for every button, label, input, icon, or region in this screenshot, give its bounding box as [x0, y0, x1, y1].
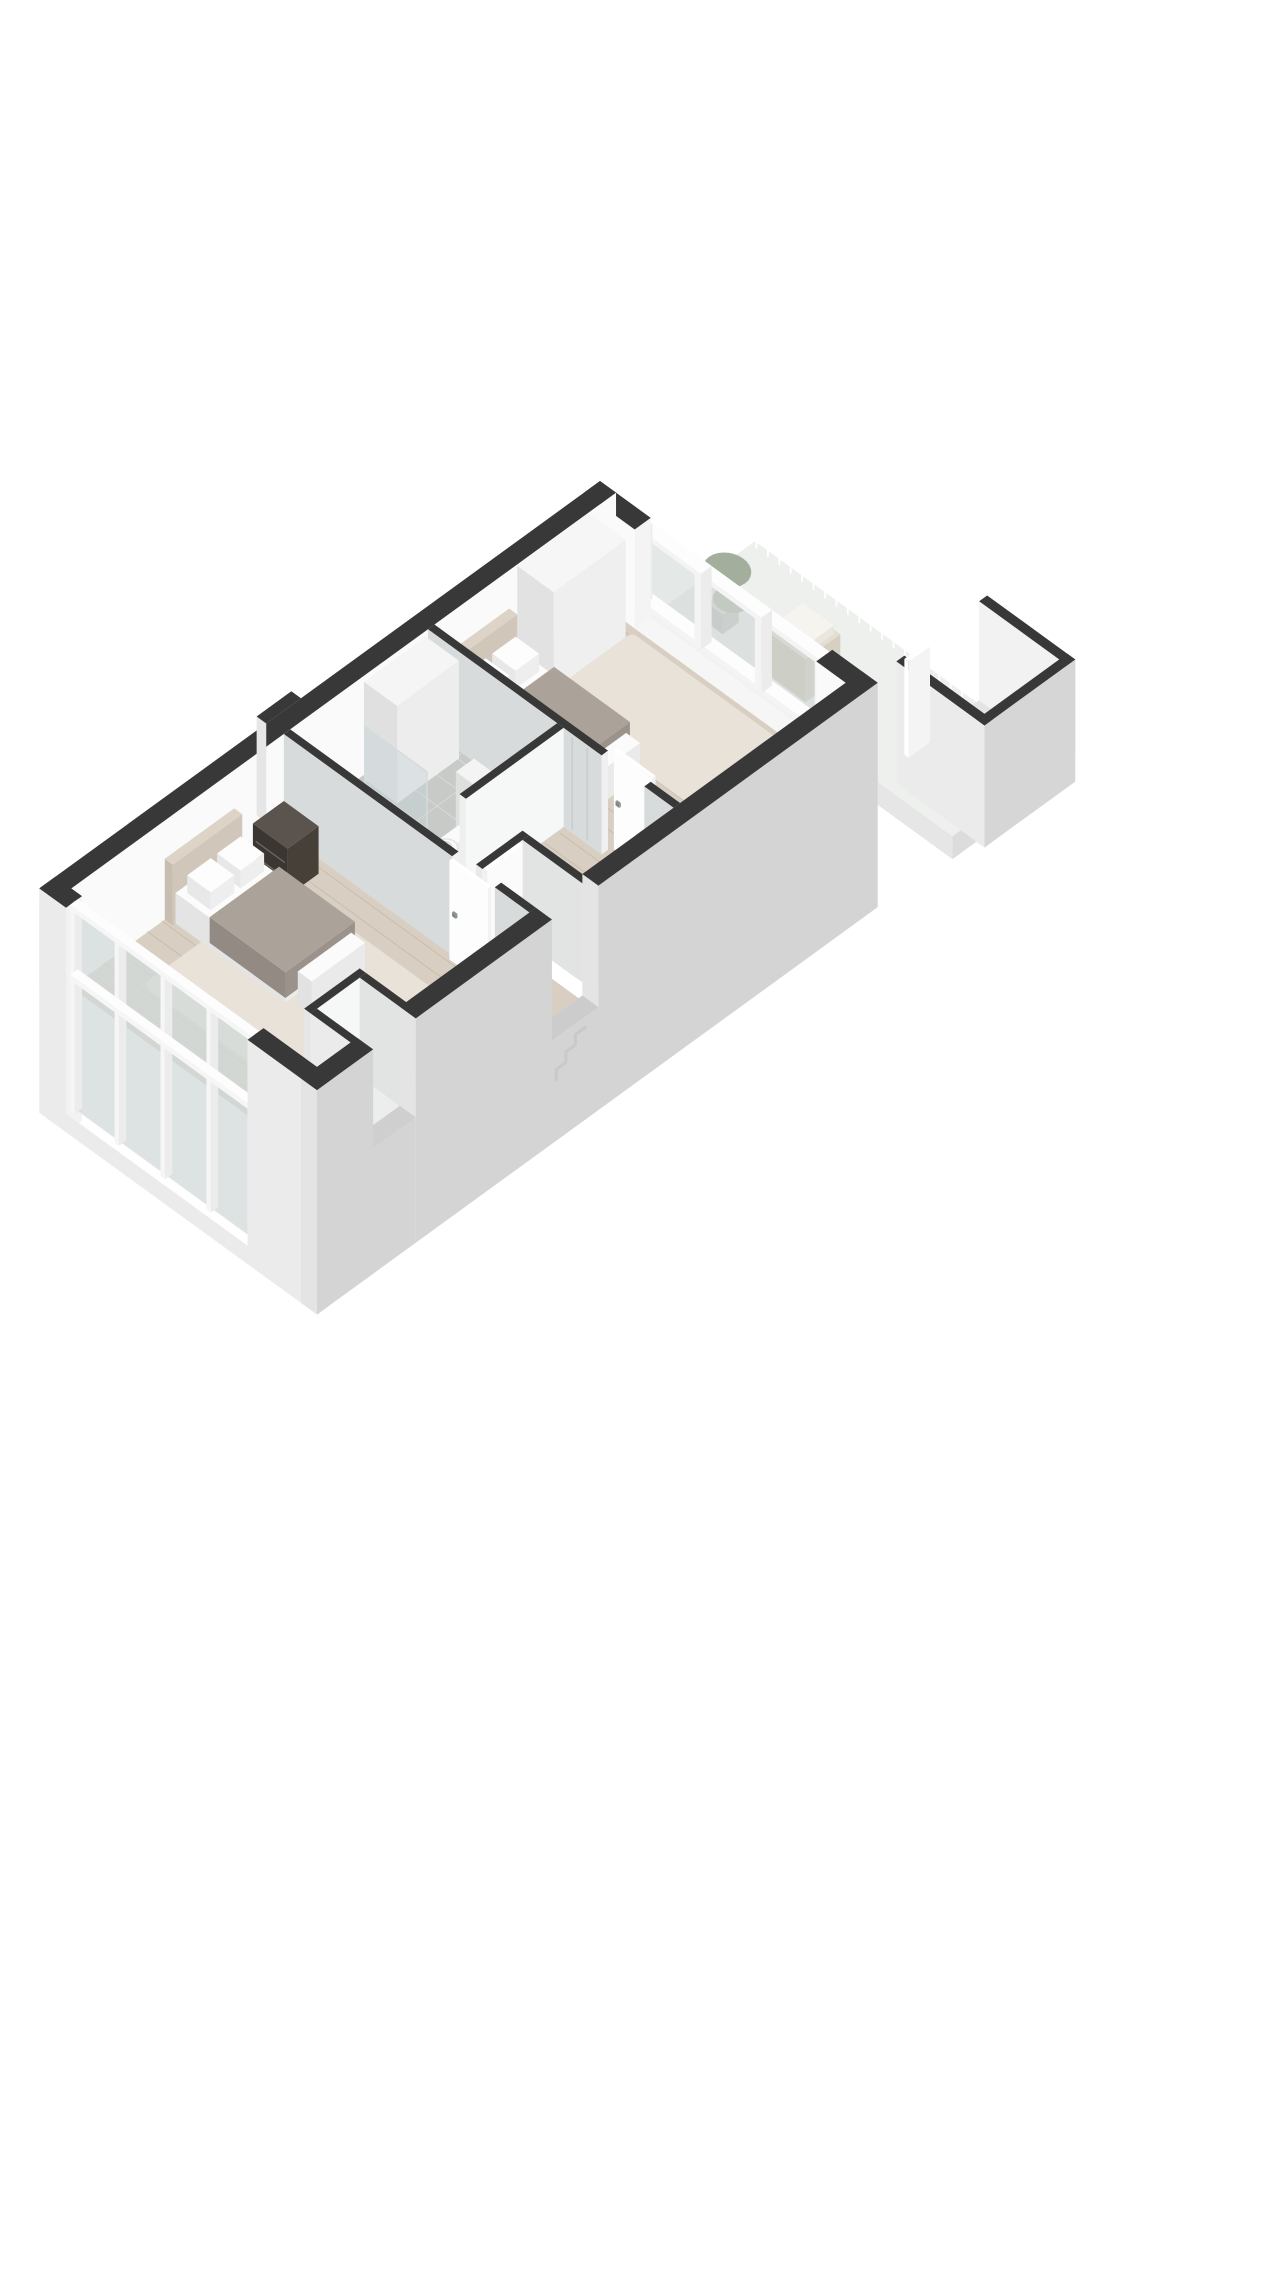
sw-window-frame-4-face-sw [206, 1004, 210, 1213]
sw-window-frame-2-face-se [119, 935, 126, 1146]
sw-window-frame-4-face-se [211, 1001, 218, 1212]
balcony-block-door-frame-face-sw [904, 659, 908, 758]
floorplan-page [0, 0, 1280, 2276]
se-facade-south-face-sw [301, 1079, 317, 1315]
bed1-headboard-face-sw [165, 859, 173, 926]
ne-window-mullion-2-face-sw [755, 613, 761, 694]
ne-facade-left-face-se [635, 518, 651, 629]
partition1-wall-left-face-se [602, 751, 608, 855]
nw-chimney-bump-face-sw [257, 717, 267, 823]
balcony-block-wall-sw-face-se [984, 720, 992, 848]
sw-window-frame-3-face-sw [161, 970, 165, 1179]
sw-window-frame-3-face-se [165, 968, 172, 1179]
floorplan-canvas [0, 0, 1280, 2276]
ne-window-mullion-2-face-se [761, 610, 772, 694]
ne-window-mullion-1-face-se [701, 566, 712, 650]
sw-window-frame-2-face-sw [115, 937, 119, 1146]
sw-window-frame-1-face-se [75, 902, 82, 1113]
ne-window-mullion-1-face-sw [695, 569, 701, 650]
se-facade-south-face-se [317, 1049, 373, 1314]
balcony-block-door-frame-face-se [909, 646, 930, 757]
sw-window-frame-1-face-sw [70, 905, 74, 1114]
sw-facade-left-face-sw [39, 888, 66, 1132]
